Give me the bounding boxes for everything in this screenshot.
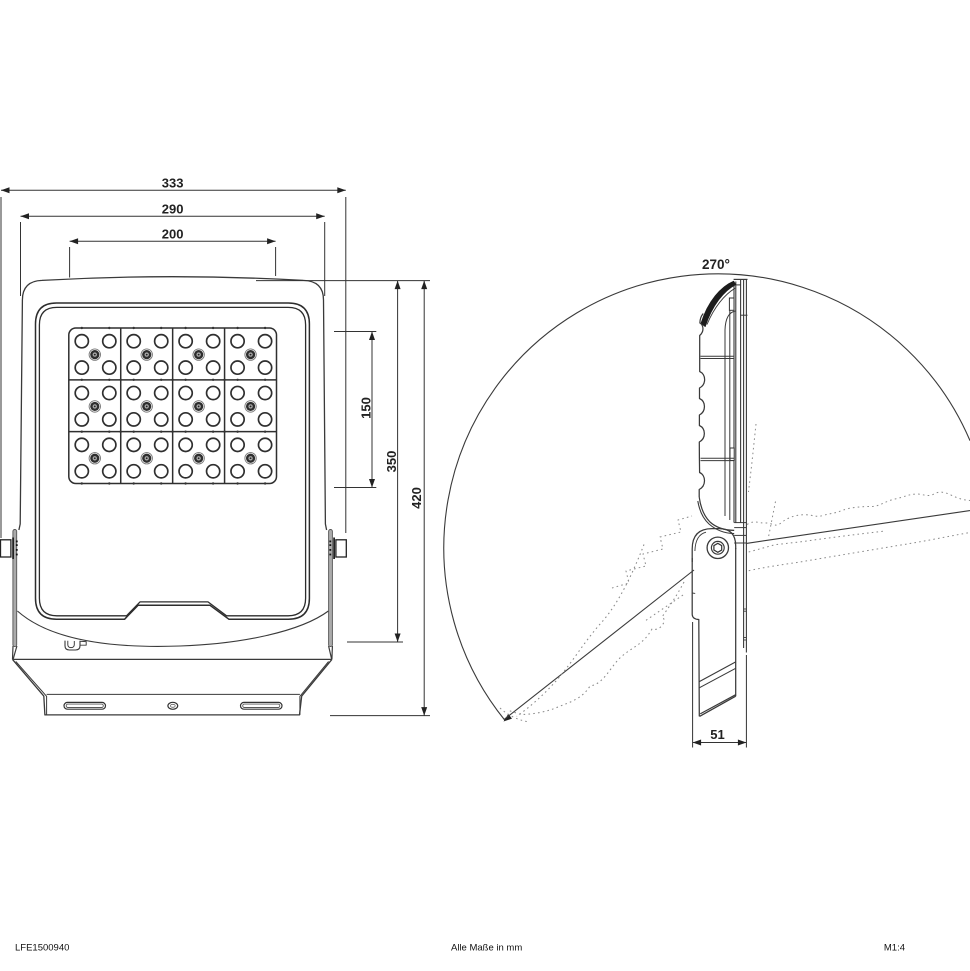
svg-text:Alle Maße in mm: Alle Maße in mm bbox=[451, 943, 522, 954]
svg-text:150: 150 bbox=[358, 397, 373, 419]
svg-text:333: 333 bbox=[162, 175, 184, 190]
svg-text:LFE1500940: LFE1500940 bbox=[15, 943, 69, 954]
svg-text:350: 350 bbox=[384, 451, 399, 473]
svg-text:M1:4: M1:4 bbox=[884, 943, 905, 954]
svg-text:270°: 270° bbox=[702, 257, 730, 272]
svg-text:51: 51 bbox=[710, 727, 724, 742]
svg-text:290: 290 bbox=[162, 201, 184, 216]
svg-text:200: 200 bbox=[162, 226, 184, 241]
svg-text:420: 420 bbox=[409, 487, 424, 509]
